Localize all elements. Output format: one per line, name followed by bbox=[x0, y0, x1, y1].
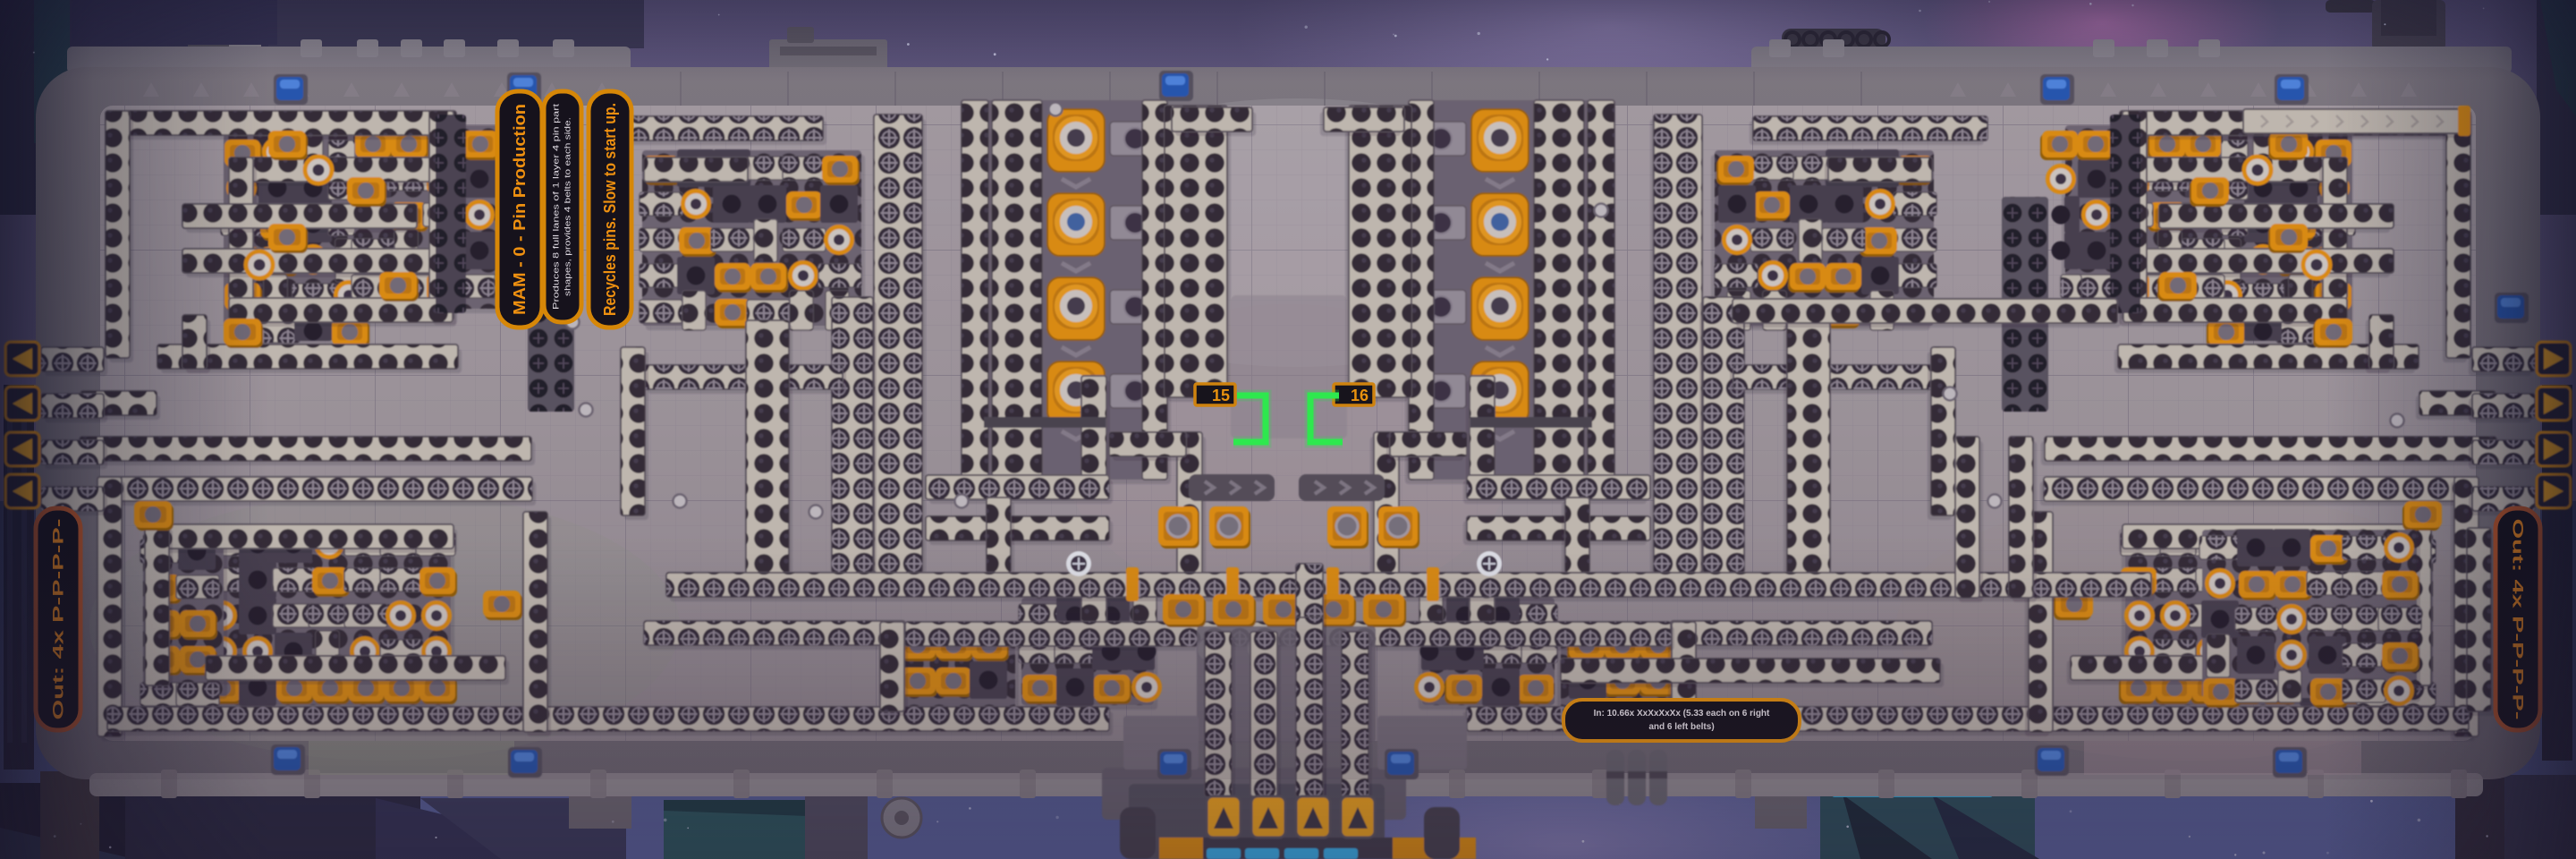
svg-text:16: 16 bbox=[1351, 387, 1368, 404]
svg-text:shapes, provides 4 belts to ea: shapes, provides 4 belts to each side. bbox=[563, 117, 573, 296]
svg-text:Recycles pins. Slow to start u: Recycles pins. Slow to start up. bbox=[601, 103, 619, 316]
svg-text:Produces 8 full lanes of 1 lay: Produces 8 full lanes of 1 layer 4 pin p… bbox=[552, 104, 562, 310]
svg-text:MAM - 0 - Pin Production: MAM - 0 - Pin Production bbox=[511, 104, 529, 315]
svg-text:15: 15 bbox=[1212, 387, 1230, 404]
